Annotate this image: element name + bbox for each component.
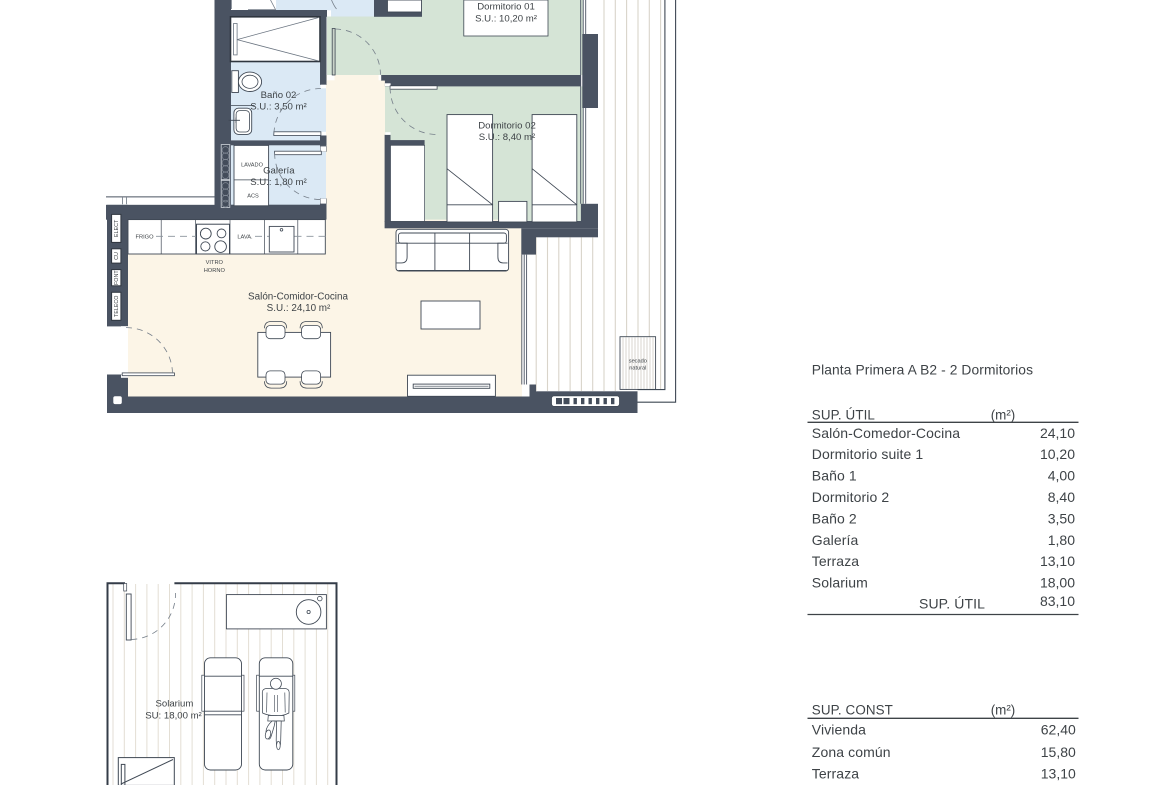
svg-text:ACS: ACS [247, 194, 259, 200]
svg-text:S.U.: 10,20 m²: S.U.: 10,20 m² [475, 14, 538, 25]
svg-text:secado: secado [629, 359, 647, 365]
svg-text:13,10: 13,10 [1041, 766, 1076, 782]
svg-text:Galería: Galería [263, 166, 295, 177]
svg-text:SU: 18,00 m²: SU: 18,00 m² [145, 711, 202, 722]
svg-text:(m²): (m²) [991, 702, 1016, 717]
svg-text:CU: CU [114, 252, 120, 260]
svg-text:SUP. ÚTIL: SUP. ÚTIL [919, 595, 985, 611]
svg-text:Baño 2: Baño 2 [812, 510, 857, 526]
svg-text:Zona común: Zona común [812, 744, 891, 760]
svg-text:S.U.: 8,40 m²: S.U.: 8,40 m² [479, 132, 536, 143]
svg-text:15,80: 15,80 [1041, 744, 1076, 760]
svg-text:Planta Primera A B2 - 2 Dormit: Planta Primera A B2 - 2 Dormitorios [812, 362, 1033, 377]
svg-text:Dormitorio 01: Dormitorio 01 [477, 2, 535, 13]
svg-text:ELECT: ELECT [114, 219, 120, 237]
svg-text:FONT: FONT [114, 270, 120, 285]
svg-text:SUP. ÚTIL: SUP. ÚTIL [812, 407, 875, 422]
svg-text:18,00: 18,00 [1040, 575, 1075, 591]
svg-text:4,00: 4,00 [1048, 468, 1075, 484]
svg-text:Solarium: Solarium [155, 699, 193, 710]
svg-text:10,20: 10,20 [1040, 446, 1075, 462]
svg-text:Baño 1: Baño 1 [812, 468, 857, 484]
svg-text:Dormitorio 2: Dormitorio 2 [812, 489, 890, 505]
svg-text:LAVADO: LAVADO [241, 163, 264, 169]
svg-text:3,50: 3,50 [1048, 510, 1075, 526]
svg-text:Baño 02: Baño 02 [261, 90, 297, 101]
svg-text:S.U.: 3,50 m²: S.U.: 3,50 m² [250, 102, 307, 113]
svg-text:Terraza: Terraza [812, 766, 859, 782]
svg-text:TELECO: TELECO [114, 296, 120, 318]
svg-text:62,40: 62,40 [1041, 722, 1076, 738]
svg-text:HORNO: HORNO [204, 268, 226, 274]
svg-text:13,10: 13,10 [1040, 553, 1075, 569]
svg-text:Vivienda: Vivienda [812, 722, 866, 738]
svg-text:Salón-Comedor-Cocina: Salón-Comedor-Cocina [812, 425, 960, 441]
svg-text:Dormitorio suite 1: Dormitorio suite 1 [812, 446, 924, 462]
svg-text:SUP. CONST: SUP. CONST [812, 702, 893, 717]
svg-text:Dormitorio 02: Dormitorio 02 [478, 121, 536, 132]
svg-text:S.U.: 24,10 m²: S.U.: 24,10 m² [267, 303, 331, 314]
svg-text:LAVA.: LAVA. [237, 234, 253, 240]
svg-text:24,10: 24,10 [1040, 425, 1075, 441]
svg-text:VITRO: VITRO [206, 260, 224, 266]
svg-text:83,10: 83,10 [1040, 593, 1075, 609]
svg-text:Terraza: Terraza [812, 553, 859, 569]
svg-text:Solarium: Solarium [812, 575, 868, 591]
svg-text:FRIGO: FRIGO [135, 234, 154, 240]
svg-text:Galería: Galería [812, 532, 859, 548]
svg-text:natural: natural [629, 366, 646, 372]
svg-text:Salón-Comidor-Cocina: Salón-Comidor-Cocina [248, 292, 348, 303]
svg-text:S.U.: 1,80 m²: S.U.: 1,80 m² [250, 177, 307, 188]
svg-text:8,40: 8,40 [1048, 489, 1075, 505]
svg-text:1,80: 1,80 [1048, 532, 1075, 548]
svg-text:(m²): (m²) [991, 407, 1016, 422]
